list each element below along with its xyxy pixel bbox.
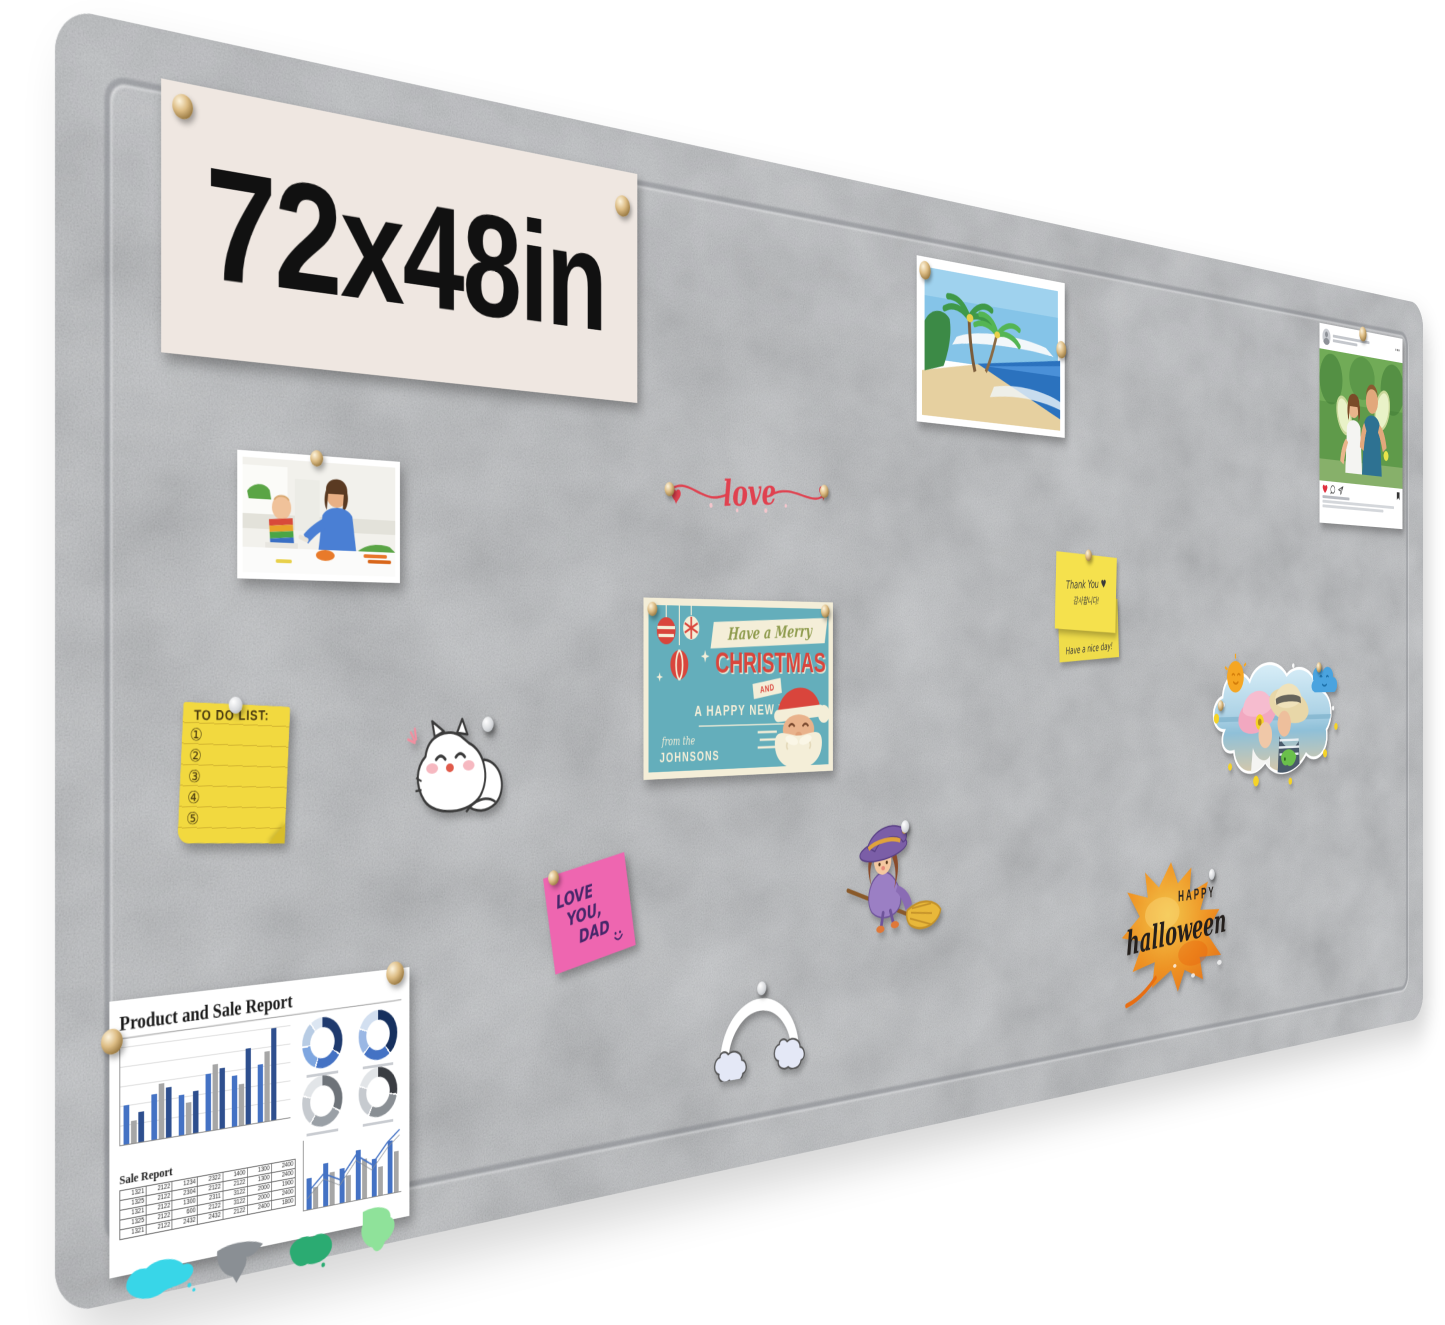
pushpin-icon <box>172 92 193 121</box>
love-text: love <box>722 472 777 515</box>
bar <box>179 1095 185 1136</box>
sticky-note-text: 감사합니다! <box>1073 594 1099 607</box>
bar <box>138 1111 144 1142</box>
bookmark-icon <box>1396 492 1399 501</box>
bar <box>206 1073 211 1131</box>
halloween-happy-text: HAPPY <box>1178 884 1216 905</box>
pushpin-icon <box>821 604 830 618</box>
donut-chart <box>302 1072 342 1129</box>
pushpin-icon <box>665 482 675 497</box>
heart-icon <box>1322 484 1327 494</box>
more-dots-icon: ••• <box>1395 345 1400 355</box>
pushpin-icon <box>647 602 657 617</box>
sale-report-document: Product and Sale Report Sale Report 1321… <box>109 967 409 1279</box>
instagram-footer <box>1320 480 1403 529</box>
ornaments-art <box>651 603 716 699</box>
pushpin-icon <box>386 961 404 986</box>
family-photo <box>237 450 400 583</box>
pushpin-icon <box>1085 549 1092 561</box>
todo-number: ② <box>189 746 203 767</box>
share-icon <box>1338 486 1343 496</box>
pushpin-icon <box>1056 340 1066 359</box>
smiley-icon <box>613 928 625 943</box>
bar <box>124 1105 130 1144</box>
africa-map-icon <box>349 1200 397 1262</box>
donut-chart <box>358 1064 397 1120</box>
bar <box>258 1064 263 1123</box>
page-curl <box>268 823 285 843</box>
sticky-note-text: Have a nice day! <box>1065 640 1113 657</box>
bar <box>213 1064 218 1130</box>
witch-sticker <box>839 816 944 946</box>
bar-group <box>124 1040 145 1144</box>
bar-group <box>258 1023 277 1122</box>
sticky-note-top: Thank You ♥ 감사합니다! <box>1055 551 1117 633</box>
cat-sticker <box>405 709 511 823</box>
pushpin-icon <box>1359 326 1366 342</box>
christmas-script-text: Have a Merry <box>727 621 812 644</box>
couple-tennis-photo <box>1320 348 1403 489</box>
todo-number: ③ <box>188 767 202 788</box>
australia-map-icon <box>279 1223 337 1278</box>
product-photo-stage: 72x48in <box>0 0 1445 1325</box>
bar-group <box>206 1030 225 1131</box>
cloud-icon <box>1312 667 1338 693</box>
sticky-notes: Have a nice day! Thank You ♥ 감사합니다! <box>1056 553 1122 663</box>
pushpin-icon <box>820 484 829 498</box>
todo-number: ① <box>189 725 203 746</box>
christmas-family-name: JOHNSONS <box>660 748 720 766</box>
beach-painting-art <box>922 263 1060 430</box>
santa-art <box>757 672 831 770</box>
rainbow-sticker <box>714 978 806 1083</box>
family-photo-art <box>243 457 396 577</box>
todo-number: ④ <box>187 788 201 809</box>
bar-group <box>151 1037 171 1140</box>
bar <box>232 1075 237 1127</box>
perspective-scene: 72x48in <box>0 0 1445 1325</box>
cloud-photo-frame <box>1205 639 1340 792</box>
pushpin-icon <box>1218 700 1224 711</box>
report-donut-charts <box>298 1007 402 1131</box>
todo-numbers: ①②③④⑤ <box>186 725 203 830</box>
donut-chart <box>302 1015 342 1072</box>
pushpin-icon <box>615 194 630 218</box>
donut-chart <box>358 1007 397 1062</box>
pushpin-icon <box>1316 662 1321 672</box>
halloween-leaf: HAPPY halloween <box>1106 847 1253 1013</box>
pushpin-icon <box>310 450 323 467</box>
felt-board: 72x48in <box>55 6 1423 1316</box>
comment-icon <box>1331 485 1336 495</box>
instagram-photo-card: ••• <box>1320 323 1403 529</box>
christmas-card: Have a Merry CHRISTMAS AND A HAPPY NEW Y… <box>643 597 832 780</box>
christmas-script-banner: Have a Merry <box>711 618 828 648</box>
trend-line <box>304 1124 402 1211</box>
bar <box>220 1067 225 1129</box>
bar <box>131 1120 137 1143</box>
user-avatar-icon <box>1322 328 1330 346</box>
report-combo-chart <box>303 1124 401 1212</box>
bar <box>151 1094 157 1140</box>
bar <box>159 1083 165 1139</box>
asia-map-icon <box>123 1246 197 1312</box>
beach-painting <box>917 255 1065 438</box>
bar <box>186 1102 192 1135</box>
pushpin-icon <box>919 260 930 281</box>
bar-group <box>179 1033 199 1135</box>
sticky-note-text: Thank You ♥ <box>1066 578 1107 592</box>
todo-number: ⑤ <box>186 809 200 830</box>
bar <box>264 1051 269 1121</box>
todo-list-note: TO DO LIST: ①②③④⑤ <box>177 702 290 844</box>
bar <box>166 1087 172 1138</box>
north-america-map-icon <box>209 1233 267 1292</box>
bar <box>246 1048 251 1125</box>
christmas-from: from the <box>662 735 695 749</box>
bar <box>271 1028 276 1120</box>
bar <box>193 1091 199 1133</box>
bar <box>239 1084 244 1126</box>
size-label: 72x48in <box>205 130 605 362</box>
report-bar-chart <box>119 1021 290 1146</box>
bar-group <box>232 1027 251 1127</box>
